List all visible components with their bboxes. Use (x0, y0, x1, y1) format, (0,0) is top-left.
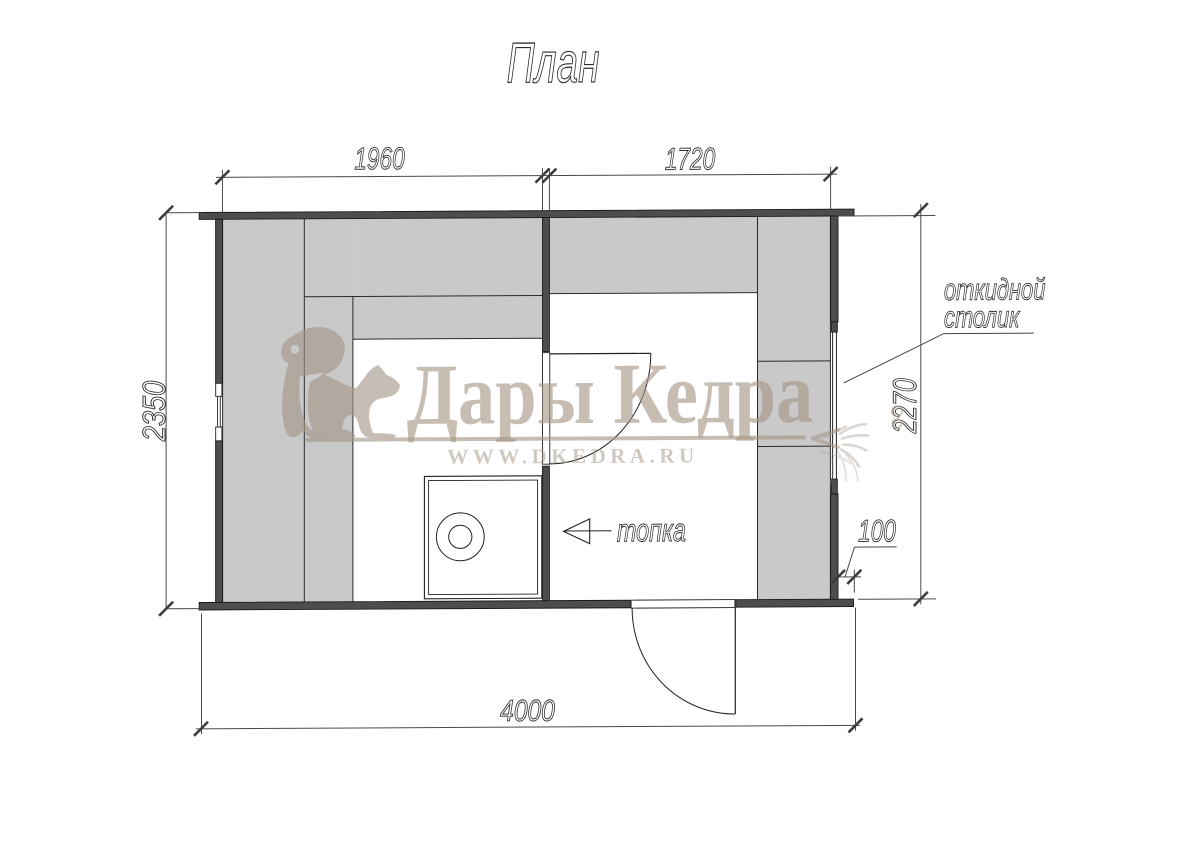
svg-text:1720: 1720 (665, 141, 715, 177)
svg-text:топка: топка (617, 512, 686, 548)
svg-text:4000: 4000 (500, 693, 555, 727)
svg-text:Дары Кедра: Дары Кедра (407, 344, 814, 443)
svg-text:2350: 2350 (137, 380, 173, 442)
svg-text:столик: столик (944, 300, 1021, 335)
svg-text:100: 100 (858, 513, 896, 549)
svg-text:WWW.DKEDRA.RU: WWW.DKEDRA.RU (447, 443, 698, 468)
svg-text:1960: 1960 (354, 140, 404, 176)
svg-text:План: План (507, 32, 600, 96)
